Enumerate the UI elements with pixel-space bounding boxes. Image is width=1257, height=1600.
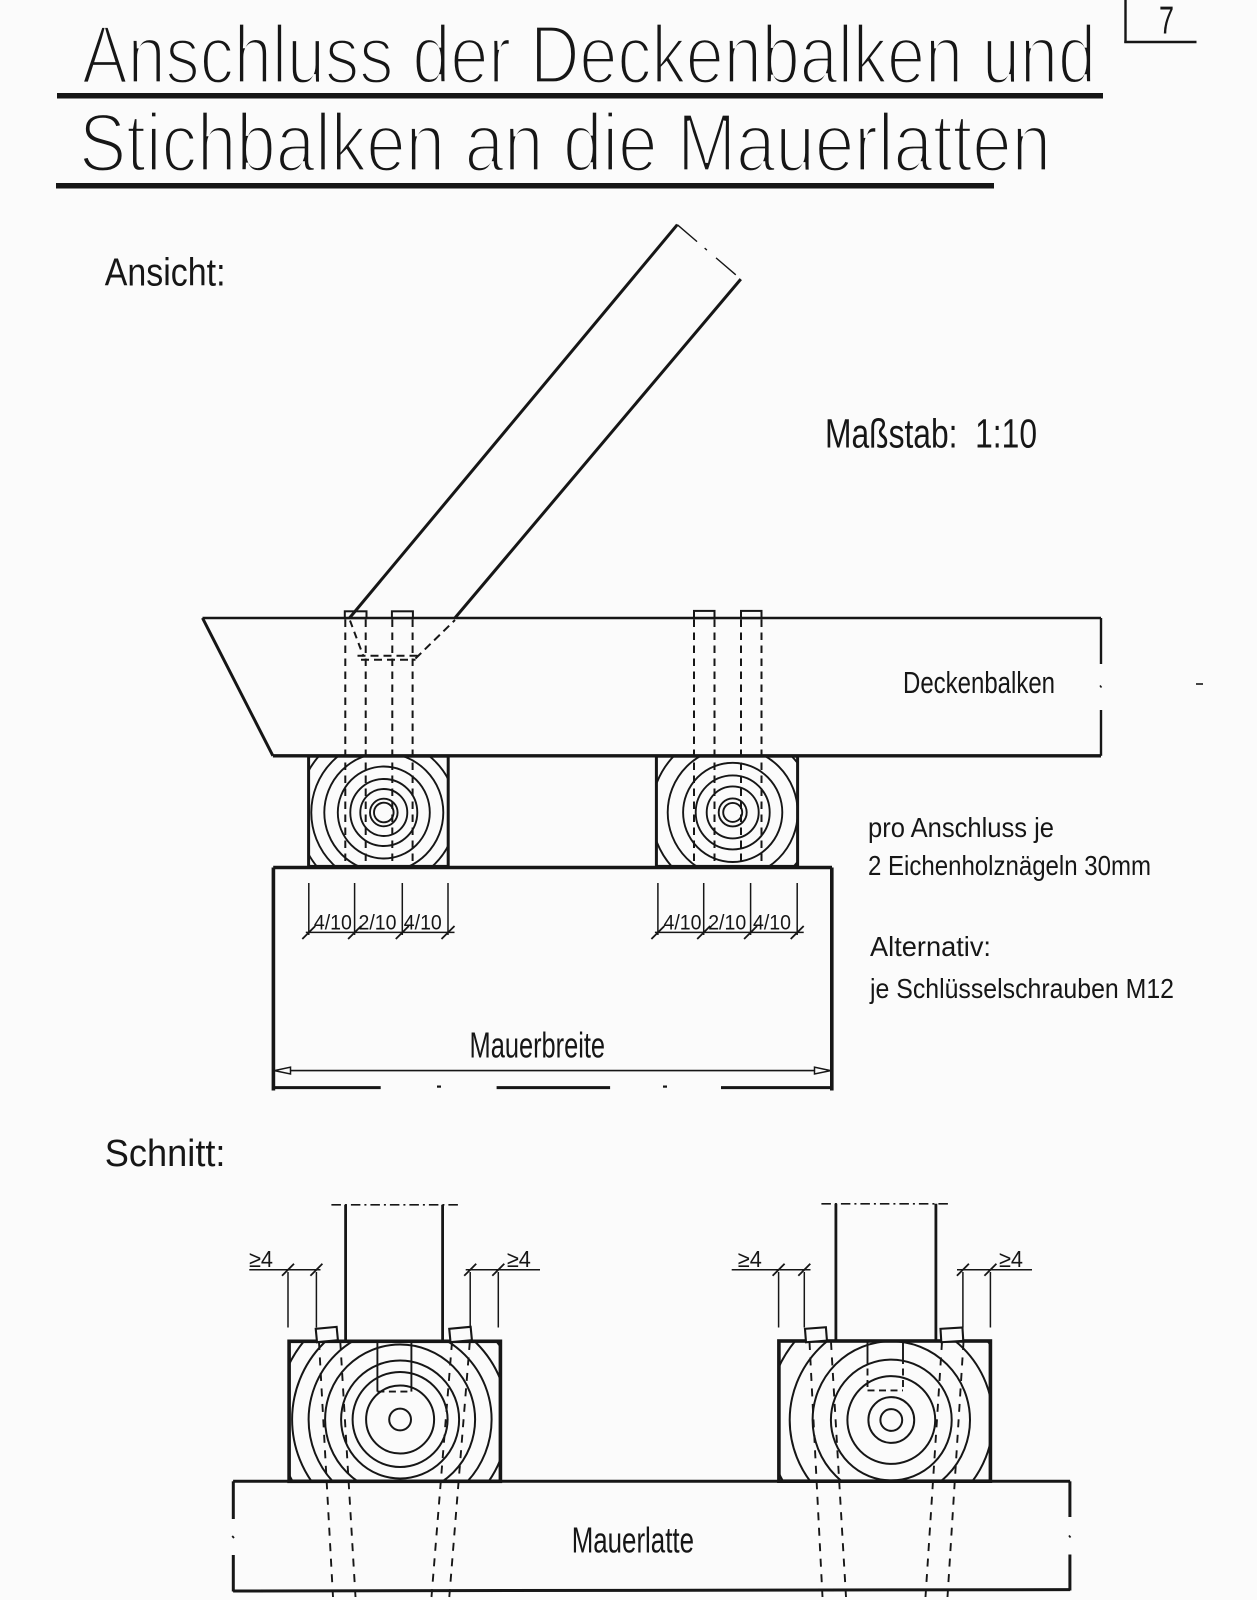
svg-text:2 Eichenholznägeln 30mm: 2 Eichenholznägeln 30mm — [868, 849, 1151, 881]
svg-text:Schnitt:: Schnitt: — [105, 1133, 226, 1175]
svg-text:4/10: 4/10 — [664, 910, 702, 935]
svg-text:2/10: 2/10 — [359, 910, 397, 935]
svg-text:Deckenbalken: Deckenbalken — [903, 666, 1055, 700]
svg-text:4/10: 4/10 — [404, 910, 442, 935]
svg-text:Maßstab: 1:10: Maßstab: 1:10 — [825, 411, 1037, 457]
svg-text:≥4: ≥4 — [738, 1246, 762, 1272]
svg-text:2/10: 2/10 — [708, 910, 746, 935]
svg-text:pro Anschluss je: pro Anschluss je — [868, 811, 1054, 843]
svg-text:4/10: 4/10 — [753, 910, 791, 935]
svg-text:4/10: 4/10 — [314, 910, 352, 935]
svg-text:je Schlüsselschrauben M12: je Schlüsselschrauben M12 — [869, 972, 1174, 1004]
svg-text:Alternativ:: Alternativ: — [870, 930, 991, 962]
svg-text:Anschluss der Deckenbalken und: Anschluss der Deckenbalken und — [82, 8, 1096, 101]
svg-text:7: 7 — [1159, 0, 1174, 43]
svg-text:≥4: ≥4 — [249, 1246, 273, 1272]
svg-text:Stichbalken an die Mauerlatten: Stichbalken an die Mauerlatten — [79, 96, 1051, 189]
svg-text:Mauerlatte: Mauerlatte — [572, 1520, 694, 1561]
svg-text:≥4: ≥4 — [999, 1246, 1023, 1272]
svg-text:Ansicht:: Ansicht: — [105, 252, 226, 295]
svg-text:Mauerbreite: Mauerbreite — [470, 1025, 606, 1066]
svg-text:≥4: ≥4 — [507, 1246, 531, 1272]
